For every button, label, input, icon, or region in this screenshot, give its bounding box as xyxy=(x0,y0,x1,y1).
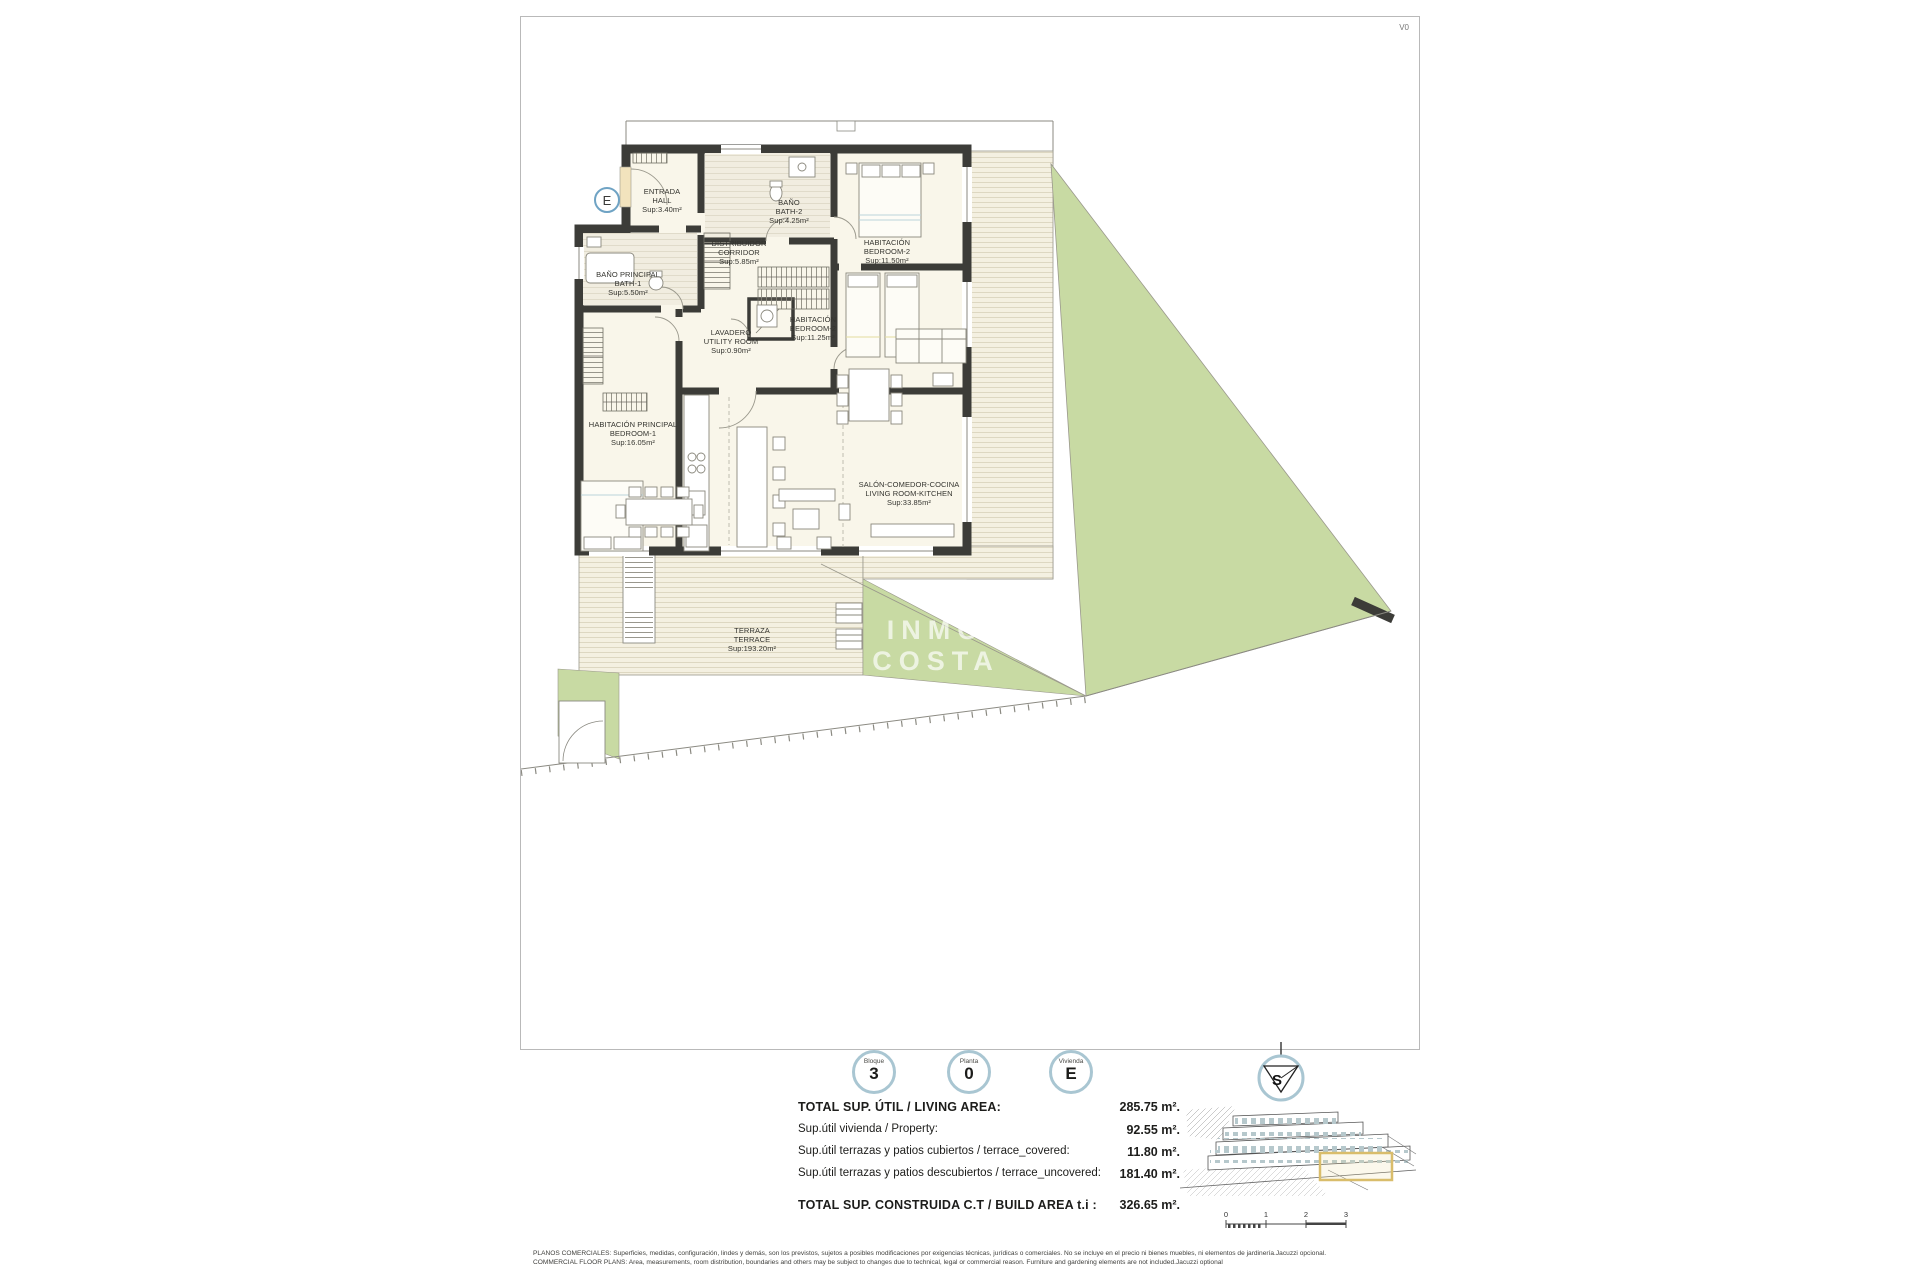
scale-bar: 0 1 2 3 xyxy=(1222,1208,1352,1234)
watermark: INMO COSTA xyxy=(861,615,1011,677)
area-row-property: Sup.útil vivienda / Property: 92.55 m². xyxy=(798,1123,1180,1137)
unit-marker-circle: E xyxy=(594,187,620,213)
floor-plan-drawing xyxy=(521,17,1419,1049)
footer-disclaimer: PLANOS COMERCIALES: Superficies, medidas… xyxy=(533,1249,1326,1267)
badge-vivienda: Vivienda E xyxy=(1049,1050,1093,1094)
area-row-total-util: TOTAL SUP. ÚTIL / LIVING AREA: 285.75 m²… xyxy=(798,1100,1180,1114)
badge-bloque: Bloque 3 xyxy=(852,1050,896,1094)
svg-text:S: S xyxy=(1272,1072,1282,1089)
room-label-bedroom2: HABITACIÓNBEDROOM-2Sup:11.50m² xyxy=(864,239,910,265)
svg-text:1: 1 xyxy=(1264,1210,1268,1219)
version-label: V0 xyxy=(1399,23,1409,32)
disclaimer-line-es: PLANOS COMERCIALES: Superficies, medidas… xyxy=(533,1249,1326,1258)
room-label-terrace: TERRAZATERRACESup:193.20m² xyxy=(728,627,776,653)
room-label-entrada: ENTRADAHALLSup:3.40m² xyxy=(642,188,682,214)
unit-marker-letter: E xyxy=(603,193,612,208)
room-label-living: SALÓN-COMEDOR-COCINALIVING ROOM-KITCHENS… xyxy=(859,481,960,507)
svg-text:0: 0 xyxy=(1224,1210,1228,1219)
area-row-terrace-uncovered: Sup.útil terrazas y patios descubiertos … xyxy=(798,1167,1180,1181)
disclaimer-line-en: COMMERCIAL FLOOR PLANS: Area, measuremen… xyxy=(533,1258,1326,1267)
page: E INMO COSTA ENTRADAHALLSup:3.40m² BAÑOB… xyxy=(0,0,1920,1280)
compass-icon: S xyxy=(1254,1040,1308,1104)
room-label-utility: LAVADEROUTILITY ROOMSup:0.90m² xyxy=(704,329,758,355)
svg-text:3: 3 xyxy=(1344,1210,1348,1219)
area-row-terrace-covered: Sup.útil terrazas y patios cubiertos / t… xyxy=(798,1145,1180,1159)
room-label-corridor: DISTRIBUIDORCORRIDORSup:5.85m² xyxy=(712,240,767,266)
area-row-total-build: TOTAL SUP. CONSTRUIDA C.T / BUILD AREA t… xyxy=(798,1198,1180,1212)
room-label-bedroom3: HABITACIÓNBEDROOM-2Sup:11.25m² xyxy=(790,316,836,342)
badge-planta: Planta 0 xyxy=(947,1050,991,1094)
room-label-bath1: BAÑO PRINCIPALBATH-1Sup:5.50m² xyxy=(596,271,660,297)
svg-text:2: 2 xyxy=(1304,1210,1308,1219)
room-label-bath2: BAÑOBATH-2Sup:4.25m² xyxy=(769,199,809,225)
building-sketch xyxy=(1178,1100,1418,1208)
plan-sheet: E INMO COSTA ENTRADAHALLSup:3.40m² BAÑOB… xyxy=(520,16,1420,1050)
room-label-bedroom1: HABITACIÓN PRINCIPALBEDROOM-1Sup:16.05m² xyxy=(589,421,677,447)
